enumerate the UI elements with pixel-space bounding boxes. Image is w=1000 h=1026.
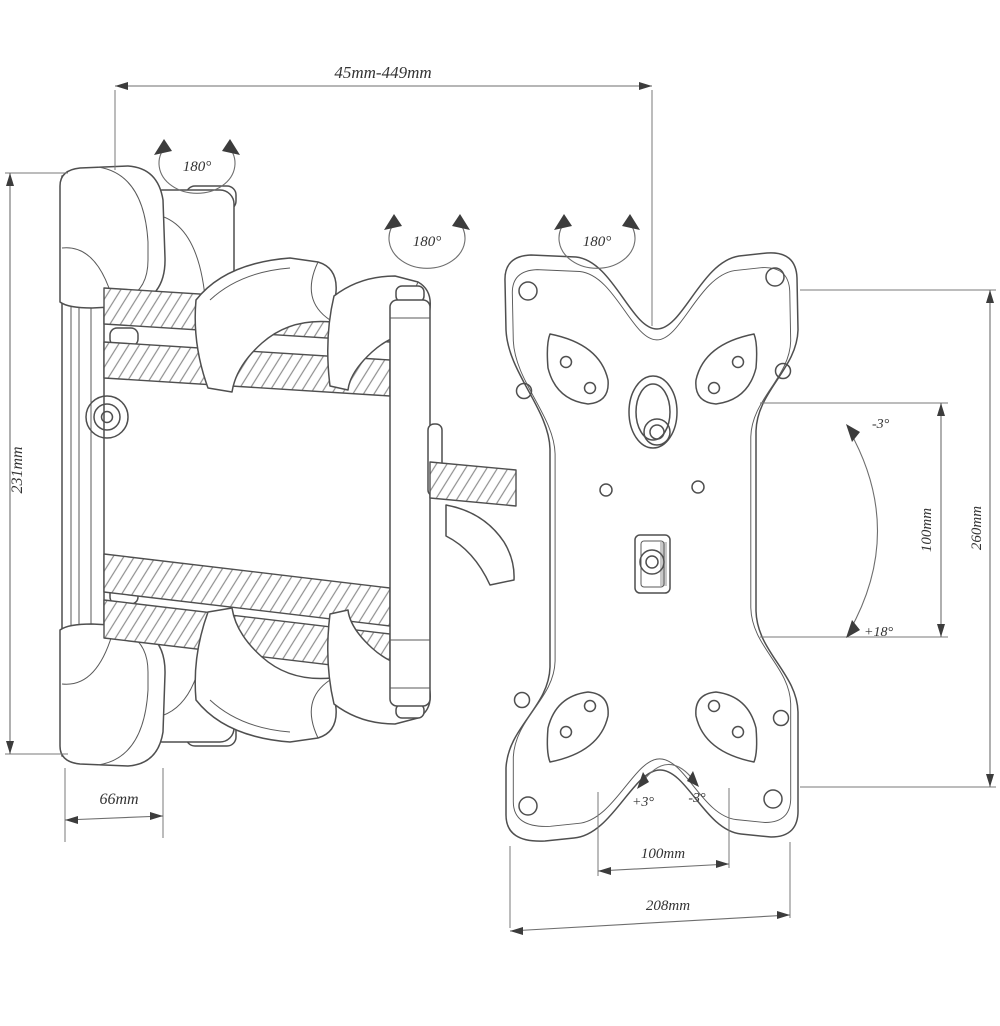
vesa-plate	[505, 253, 798, 841]
mount-technical-drawing: 45mm-449mm 231mm 66mm 180° 180° 180°	[0, 0, 1000, 1026]
dim-plate-height-label: 260mm	[969, 506, 985, 550]
plate-connector-arm	[430, 462, 516, 585]
swivel-arc-2: 180°	[384, 214, 470, 268]
tilt-angle-top: -3°	[872, 417, 890, 432]
edge-hole-left-lower	[515, 693, 530, 708]
swivel-angle-1: 180°	[183, 159, 212, 175]
pivot-column	[390, 286, 442, 718]
level-angle-left: +3°	[632, 795, 654, 810]
technical-drawing-page: 45mm-449mm 231mm 66mm 180° 180° 180°	[0, 0, 1000, 1026]
dim-wall-plate-width: 66mm	[65, 768, 163, 842]
tilt-angle-bottom: +18°	[864, 625, 893, 640]
dim-extension-range-label: 45mm-449mm	[334, 63, 431, 82]
dim-vesa-horizontal-label: 100mm	[641, 846, 685, 862]
dim-plate-width-label: 208mm	[646, 898, 690, 914]
dim-vesa-vertical-label: 100mm	[919, 508, 935, 552]
tilt-arc: -3° +18°	[846, 417, 893, 640]
dim-plate-height: 260mm	[800, 290, 996, 787]
dim-wall-plate-width-label: 66mm	[99, 791, 138, 808]
dim-bracket-height-label: 231mm	[9, 446, 26, 493]
swivel-angle-2: 180°	[413, 234, 442, 250]
swivel-arc-1: 180°	[154, 139, 240, 193]
dim-bracket-height: 231mm	[5, 173, 68, 754]
swivel-angle-3: 180°	[583, 234, 612, 250]
plate-lock-boss	[635, 535, 670, 593]
level-angle-right: -3°	[688, 791, 706, 806]
